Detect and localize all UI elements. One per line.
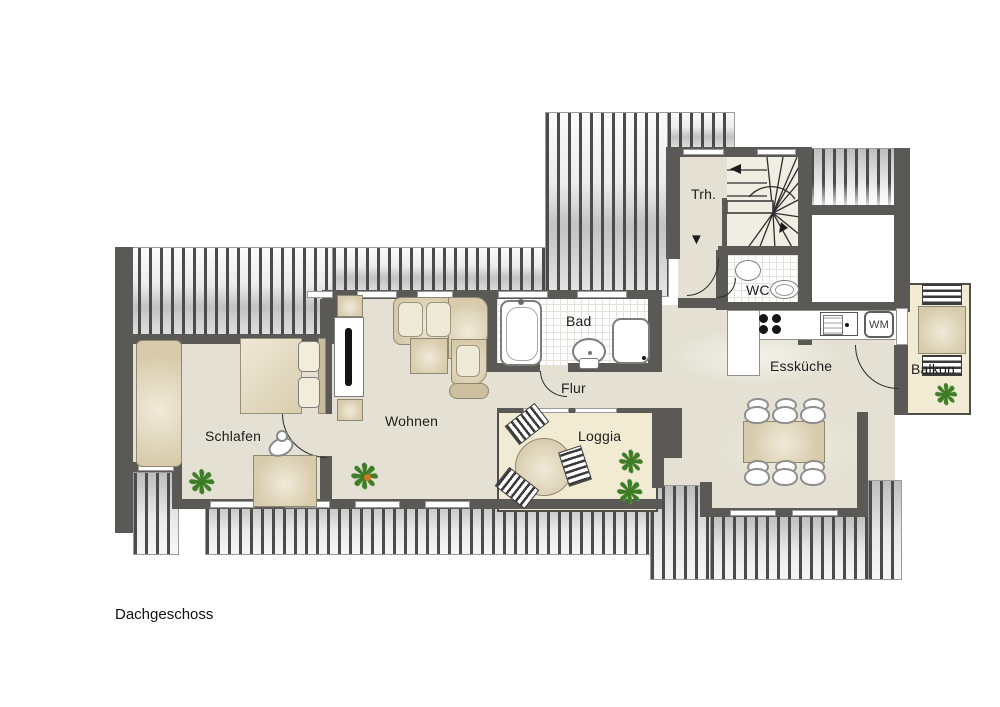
bathtub xyxy=(500,300,542,366)
wall-stair-divider xyxy=(722,198,727,250)
bad-sink-drain xyxy=(588,351,592,355)
wall-left xyxy=(115,247,133,533)
kitchen-sink-basin xyxy=(823,315,843,335)
washing-machine-label: WM xyxy=(869,319,889,331)
plant-schlafen-icon: ❋ xyxy=(188,466,215,498)
wc-toilet-rim xyxy=(775,284,794,296)
dining-chair xyxy=(800,460,826,486)
burner-4 xyxy=(772,325,781,334)
dining-table xyxy=(743,421,825,463)
adjacent-room xyxy=(812,213,896,303)
wall-kitchen-bottom-left xyxy=(700,482,712,517)
roof-hatch-bottom-kitchen xyxy=(710,515,872,580)
wall-adjacent-top xyxy=(808,205,908,215)
sofa-armrest xyxy=(449,383,489,399)
floor-plan: ❋ ❋ xyxy=(0,0,1000,707)
tv-screen xyxy=(345,328,352,386)
stove xyxy=(758,312,786,336)
burner-3 xyxy=(759,325,768,334)
shower-drain xyxy=(642,356,646,360)
wall-entry-pocket xyxy=(678,298,720,308)
bathtub-faucet xyxy=(518,299,524,305)
vase-neck xyxy=(276,430,288,442)
wall-right-upper xyxy=(894,148,910,308)
bed-pillow-1 xyxy=(298,341,320,372)
staircase xyxy=(727,157,800,249)
wall-bad-right xyxy=(648,290,662,372)
room-label-loggia: Loggia xyxy=(578,428,621,444)
wc-sink xyxy=(735,260,761,281)
wall-kitchen-right xyxy=(857,412,868,517)
wall-kitchen-bottom xyxy=(700,508,868,517)
roof-hatch-right xyxy=(810,148,900,212)
window-bottom-4 xyxy=(425,501,470,508)
wardrobe xyxy=(136,340,182,467)
room-label-bad: Bad xyxy=(566,313,592,329)
window-loggia-2 xyxy=(575,408,617,413)
room-label-treppenhaus: Trh. xyxy=(691,186,716,202)
roof-hatch-top-left xyxy=(115,247,334,344)
wall-loggia-column-lower xyxy=(652,455,664,488)
window-bad-2 xyxy=(577,291,627,298)
kitchen-counter-left xyxy=(727,310,760,376)
bathtub-inner xyxy=(506,307,538,361)
plant-wohnen-bloom xyxy=(364,474,371,481)
bed xyxy=(240,338,324,412)
bed-mattress xyxy=(240,338,302,414)
entrance-arrow-icon: ▼ xyxy=(689,231,704,248)
balkon-door-leaf xyxy=(896,308,908,345)
tv-unit xyxy=(334,295,364,421)
room-label-schlafen: Schlafen xyxy=(205,428,261,444)
plant-balkon-icon: ❋ xyxy=(934,381,957,409)
kitchen-sink xyxy=(820,312,858,336)
plan-title: Dachgeschoss xyxy=(115,606,213,623)
roof-hatch-center xyxy=(545,112,669,297)
vase xyxy=(264,430,298,460)
roof-hatch-bottom-right xyxy=(868,480,902,580)
window-kitchen-1 xyxy=(730,510,776,516)
window-wohnen-1 xyxy=(307,291,333,298)
staircase-drawing xyxy=(727,157,800,249)
bad-sink-pedestal xyxy=(579,358,599,369)
room-label-balkon: Balkon xyxy=(911,361,955,377)
window-stair-2 xyxy=(757,149,796,155)
burner-1 xyxy=(759,314,768,323)
shower xyxy=(612,318,650,364)
wall-loggia-column xyxy=(652,408,682,458)
window-bottom-1 xyxy=(210,501,255,508)
sofa-cushion-3 xyxy=(456,345,480,377)
wall-stair-left xyxy=(666,147,680,259)
window-bad-1 xyxy=(498,291,548,298)
dining-chair xyxy=(744,398,770,424)
dining-chair xyxy=(772,398,798,424)
window-stair-1 xyxy=(683,149,724,155)
balkon-chair-top xyxy=(922,284,962,305)
wc-toilet xyxy=(770,280,799,299)
wall-wc-top xyxy=(718,246,810,255)
burner-2 xyxy=(772,314,781,323)
roof-hatch-above-stairs xyxy=(667,112,735,152)
sofa-cushion-1 xyxy=(398,302,423,337)
room-label-wc: WC xyxy=(746,282,770,298)
balkon-table xyxy=(918,306,966,354)
room-label-flur: Flur xyxy=(561,380,586,396)
room-label-wohnen: Wohnen xyxy=(385,413,438,429)
room-label-esskueche: Essküche xyxy=(770,358,832,374)
kitchen-sink-faucet xyxy=(845,323,849,327)
window-bottom-3 xyxy=(355,501,400,508)
plant-loggia-2-icon: ❋ xyxy=(616,476,643,508)
sofa-cushion-2 xyxy=(426,302,451,337)
bed-pillow-2 xyxy=(298,377,320,408)
tv-cabinet-top xyxy=(337,295,363,317)
tv-cabinet-bottom xyxy=(337,399,363,421)
dresser xyxy=(253,455,317,507)
coffee-table xyxy=(410,338,448,374)
dining-chair xyxy=(772,460,798,486)
window-kitchen-2 xyxy=(792,510,838,516)
washing-machine: WM xyxy=(864,311,894,338)
dining-chair xyxy=(744,460,770,486)
dining-chair xyxy=(800,398,826,424)
